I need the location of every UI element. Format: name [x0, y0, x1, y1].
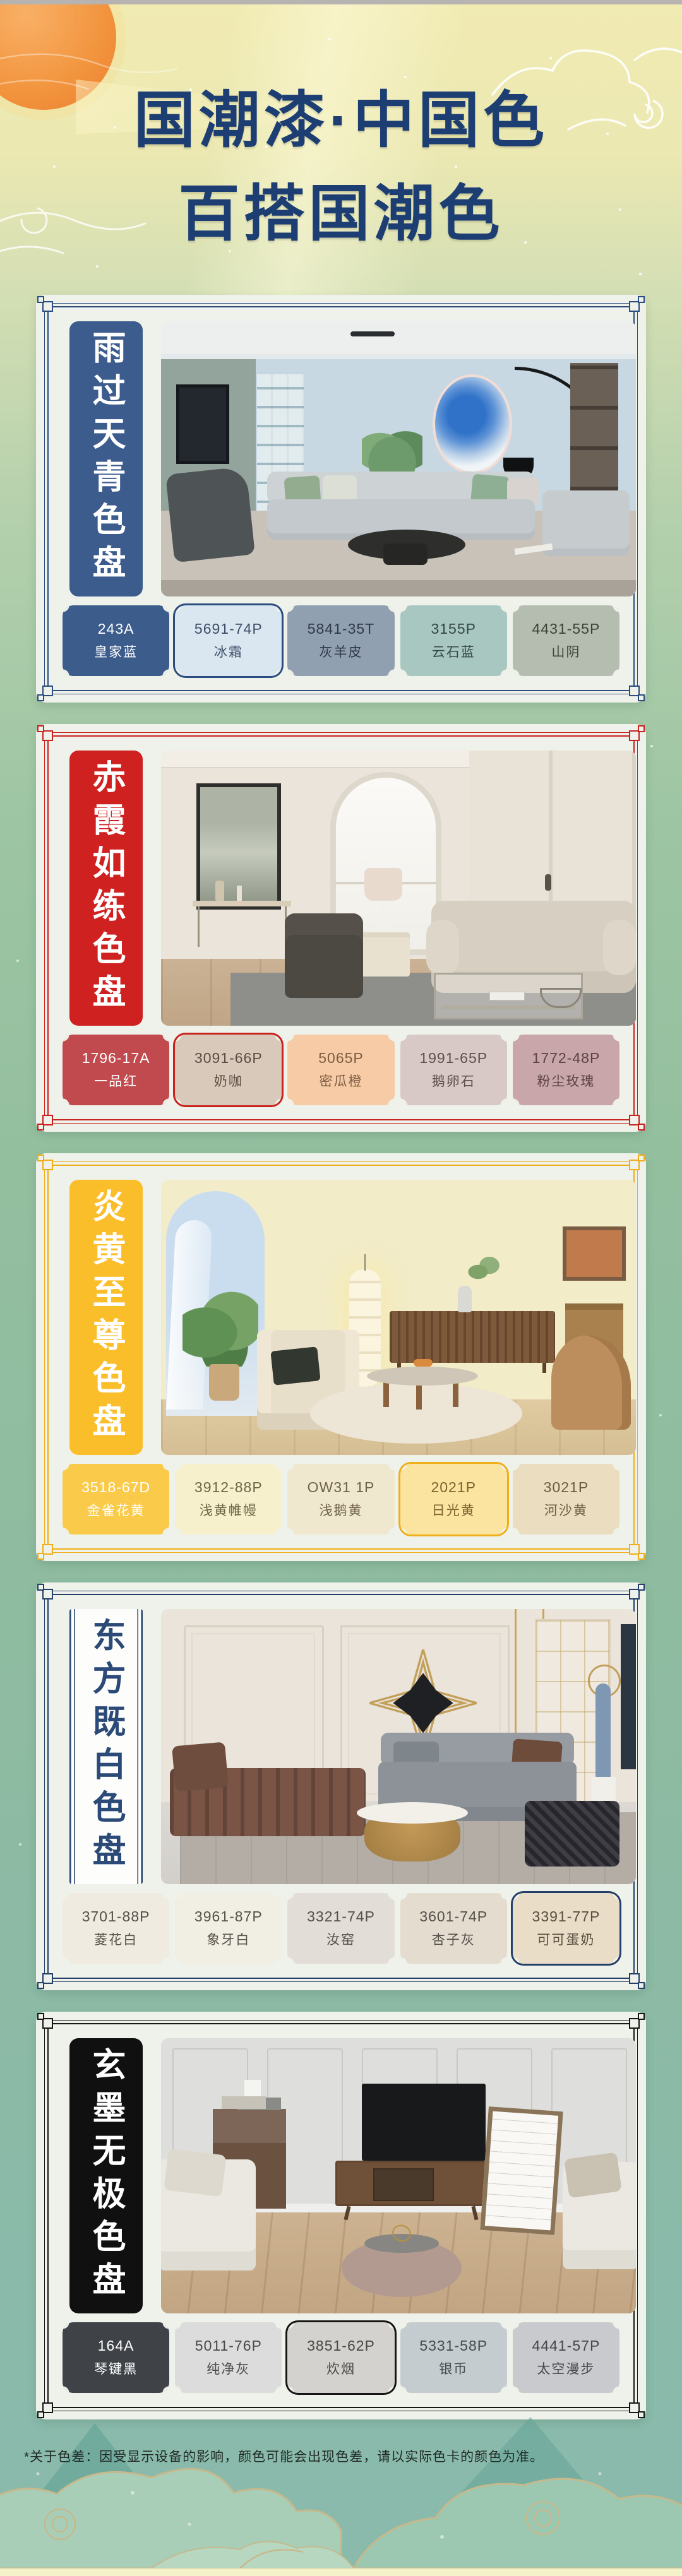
color-swatch: 3155P云石蓝 [400, 605, 507, 676]
frame-corner-ornament [42, 2018, 59, 2034]
swatch-row: 164A琴键黑 5011-76P纯净灰 3851-62P炊烟 5331-58P银… [63, 2322, 619, 2393]
round-art [433, 374, 512, 474]
books [489, 992, 525, 1000]
swatch-name: 可可蛋奶 [537, 1930, 595, 1949]
swatch-name: 皇家蓝 [94, 642, 138, 661]
pillow [564, 2152, 622, 2198]
leaning-art [480, 2106, 563, 2235]
swatch-code: 5011-76P [195, 2337, 262, 2354]
lamp-shade [364, 868, 402, 901]
palette-card-rain-blue: 雨过天青色盘 243A皇家蓝 [36, 295, 646, 703]
palette-card-white: 东方既白色盘 [36, 1582, 646, 1990]
palm-plant [182, 1291, 258, 1367]
fruit [414, 1359, 433, 1367]
swatch-code: 4441-57P [532, 2337, 601, 2354]
swatch-code: 3091-66P [194, 1050, 263, 1067]
swatch-name: 冰霜 [214, 642, 243, 661]
color-swatch: 2021P日光黄 [400, 1464, 507, 1534]
color-swatch: 3701-88P菱花白 [63, 1893, 169, 1964]
swatch-code: 1772-48P [532, 1050, 601, 1067]
swatch-code: 3518-67D [81, 1479, 150, 1496]
swatch-code: 2021P [431, 1479, 476, 1496]
swatch-name: 一品红 [94, 1071, 138, 1090]
frame-corner-ornament [42, 301, 59, 318]
swatch-name: 炊烟 [326, 2359, 356, 2378]
poster-title-line1: 国潮漆·中国色 [0, 90, 682, 151]
swatch-code: 3321-74P [307, 1908, 375, 1925]
sofa-arm [426, 920, 459, 975]
tv-screen [362, 2084, 486, 2161]
swatch-code: 4431-55P [532, 620, 601, 638]
lamp-cord [364, 1254, 366, 1271]
marble-tabletop [357, 1802, 468, 1824]
swatch-name: 纯净灰 [206, 2359, 250, 2378]
palette-card-red: 赤霞如练色盘 [36, 724, 646, 1132]
vase [458, 1286, 472, 1312]
swatch-code: 3961-87P [194, 1908, 263, 1925]
swatch-code: 3701-88P [82, 1908, 150, 1925]
wave-decoration [0, 2417, 682, 2568]
palette-title-banner: 炎黄至尊色盘 [69, 1180, 143, 1455]
frame-corner-ornament [623, 1160, 640, 1176]
swatch-name: 河沙黄 [544, 1500, 588, 1519]
lounge-chair [165, 466, 255, 563]
dark-art [621, 1624, 636, 1769]
frame-corner-ornament [42, 1109, 59, 1125]
armchair [285, 913, 363, 998]
console-top [193, 901, 291, 906]
swatch-code: 1796-17A [82, 1050, 150, 1067]
console-leg [198, 906, 200, 947]
color-swatch: 1772-48P粉尘玫瑰 [513, 1035, 619, 1105]
color-swatch: 3518-67D金雀花黄 [63, 1464, 169, 1534]
frame-corner-ornament [42, 730, 59, 747]
stand-glass-door [373, 2168, 434, 2201]
frame-corner-ornament [623, 1109, 640, 1125]
swatch-name: 山阴 [551, 642, 580, 661]
dark-pillow [270, 1346, 320, 1385]
swatch-name: 云石蓝 [432, 642, 476, 661]
color-swatch: 3391-77P可可蛋奶 [513, 1893, 619, 1964]
frame-corner-ornament [623, 2397, 640, 2413]
color-swatch: 3021P河沙黄 [513, 1464, 619, 1534]
color-swatch: 5065P密瓜橙 [287, 1035, 394, 1105]
frame-corner-ornament [42, 680, 59, 696]
poster-title-line2: 百搭国潮色 [0, 183, 682, 244]
color-swatch: OW31 1P浅鹅黄 [287, 1464, 394, 1534]
swatch-name: 琴键黑 [94, 2359, 138, 2378]
swatch-code: 3912-88P [194, 1479, 263, 1496]
palette-title-banner: 玄墨无极色盘 [69, 2038, 143, 2313]
room-photo-blue-livingroom [161, 321, 636, 597]
swatch-name: 菱花白 [94, 1930, 138, 1949]
door-handle [545, 874, 551, 891]
room-photo-cream-classic [161, 751, 636, 1026]
candle [237, 886, 242, 901]
color-swatch: 3851-62P炊烟 [287, 2322, 394, 2393]
frame-corner-ornament [623, 1968, 640, 1984]
frame-corner-ornament [623, 1589, 640, 1605]
color-swatch: 164A琴键黑 [63, 2322, 169, 2393]
coffee-tabletop [367, 1367, 478, 1386]
swatch-name: 浅鹅黄 [320, 1500, 363, 1519]
frame-corner-ornament [623, 680, 640, 696]
books [222, 2096, 266, 2109]
swatch-name: 杏子灰 [432, 1930, 476, 1949]
swatch-name: 密瓜橙 [320, 1071, 363, 1090]
bench-pillow [172, 1742, 229, 1791]
color-disclaimer-note: *关于色差：因受显示设备的影响，颜色可能会出现色差，请以实际色卡的颜色为准。 [24, 2447, 544, 2466]
pillow [164, 2149, 226, 2197]
palette-title-banner: 赤霞如练色盘 [69, 751, 143, 1026]
cabinet-leg [542, 1363, 546, 1373]
color-swatch: 4431-55P山阴 [513, 605, 619, 676]
room-photo-white-gold-livingroom [161, 1609, 636, 1884]
chaise [542, 490, 630, 556]
blue-statue [595, 1683, 611, 1778]
swatch-code: 5841-35T [308, 620, 374, 638]
color-swatch: 3912-88P浅黄帷幔 [175, 1464, 282, 1534]
swatch-name: 粉尘玫瑰 [537, 1071, 595, 1090]
poster: 国潮漆·中国色 百搭国潮色 雨过天青色盘 [0, 0, 682, 2576]
color-swatch: 5691-74P冰霜 [175, 605, 282, 676]
swatch-name: 象牙白 [206, 1930, 250, 1949]
palette-title-banner: 东方既白色盘 [69, 1609, 143, 1884]
top-edge-strip [0, 0, 682, 4]
frame-corner-ornament [42, 1968, 59, 1984]
color-swatch: 3961-87P象牙白 [175, 1893, 282, 1964]
branch [463, 1255, 501, 1288]
palette-title-banner: 雨过天青色盘 [69, 321, 143, 597]
bottom-cream-strip [0, 2568, 682, 2576]
swatch-code: 164A [98, 2337, 135, 2354]
ceiling-slot [350, 331, 395, 336]
swatch-name: 浅黄帷幔 [200, 1500, 258, 1519]
swatch-code: 3391-77P [532, 1908, 601, 1925]
houndstooth-ottoman [525, 1801, 619, 1867]
frame-corner-ornament [42, 1589, 59, 1605]
swatch-code: 5331-58P [419, 2337, 488, 2354]
swatch-code: 5065P [318, 1050, 364, 1067]
vase [215, 881, 224, 901]
color-swatch: 5011-76P纯净灰 [175, 2322, 282, 2393]
frame-corner-ornament [623, 301, 640, 318]
swatch-name: 鹅卵石 [432, 1071, 476, 1090]
swatch-code: 1991-65P [419, 1050, 488, 1067]
color-swatch: 3601-74P杏子灰 [400, 1893, 507, 1964]
room-photo-gray-tv-room [161, 2038, 636, 2313]
color-swatch: 1796-17A一品红 [63, 1035, 169, 1105]
sofa-arm [603, 920, 636, 975]
swatch-name: 日光黄 [432, 1500, 476, 1519]
swatch-code: 3021P [544, 1479, 589, 1496]
house-decor [244, 2080, 261, 2096]
room-photo-yellow-livingroom [161, 1180, 636, 1455]
table-leg [383, 1380, 389, 1407]
swatch-name: 汝窑 [326, 1930, 356, 1949]
swatch-row: 3701-88P菱花白 3961-87P象牙白 3321-74P汝窑 3601-… [63, 1893, 619, 1964]
palette-card-yellow: 炎黄至尊色盘 3518 [36, 1153, 646, 1561]
wall-art [176, 384, 229, 464]
frame-corner-ornament [623, 2018, 640, 2034]
wall-art [563, 1226, 626, 1281]
swatch-code: 3155P [431, 620, 476, 638]
frame-corner-ornament [42, 1538, 59, 1555]
swatch-name: 金雀花黄 [87, 1500, 145, 1519]
color-swatch: 4441-57P太空漫步 [513, 2322, 619, 2393]
color-swatch: 3091-66P奶咖 [175, 1035, 282, 1105]
palette-card-black: 玄墨无极色盘 164A [36, 2012, 646, 2419]
swatch-row: 243A皇家蓝 5691-74P冰霜 5841-35T灰羊皮 3155P云石蓝 … [63, 605, 619, 676]
swatch-code: 3851-62P [307, 2337, 375, 2354]
frame-corner-ornament [42, 1160, 59, 1176]
table-leg [416, 1383, 422, 1410]
color-swatch: 5841-35T灰羊皮 [287, 605, 394, 676]
tv-cabinet [390, 1311, 555, 1363]
frame-corner-ornament [623, 730, 640, 747]
swatch-code: 5691-74P [194, 620, 263, 638]
table-base [383, 543, 428, 565]
color-swatch: 1991-65P鹅卵石 [400, 1035, 507, 1105]
frame-corner-ornament [42, 2397, 59, 2413]
swatch-code: 243A [98, 620, 135, 638]
side-table [357, 932, 410, 976]
color-swatch: 3321-74P汝窑 [287, 1893, 394, 1964]
swatch-row: 1796-17A一品红 3091-66P奶咖 5065P密瓜橙 1991-65P… [63, 1035, 619, 1105]
lamp-stem [381, 901, 385, 932]
table-leg [453, 1380, 458, 1407]
swatch-name: 灰羊皮 [320, 642, 363, 661]
color-swatch: 243A皇家蓝 [63, 605, 169, 676]
swatch-name: 奶咖 [214, 1071, 243, 1090]
swatch-code: 3601-74P [419, 1908, 488, 1925]
frame-corner-ornament [623, 1538, 640, 1555]
swatch-name: 太空漫步 [537, 2359, 595, 2378]
swatch-code: OW31 1P [308, 1479, 375, 1496]
plant-pot [209, 1364, 239, 1401]
swatch-row: 3518-67D金雀花黄 3912-88P浅黄帷幔 OW31 1P浅鹅黄 202… [63, 1464, 619, 1534]
swatch-name: 银币 [439, 2359, 468, 2378]
color-swatch: 5331-58P银币 [400, 2322, 507, 2393]
